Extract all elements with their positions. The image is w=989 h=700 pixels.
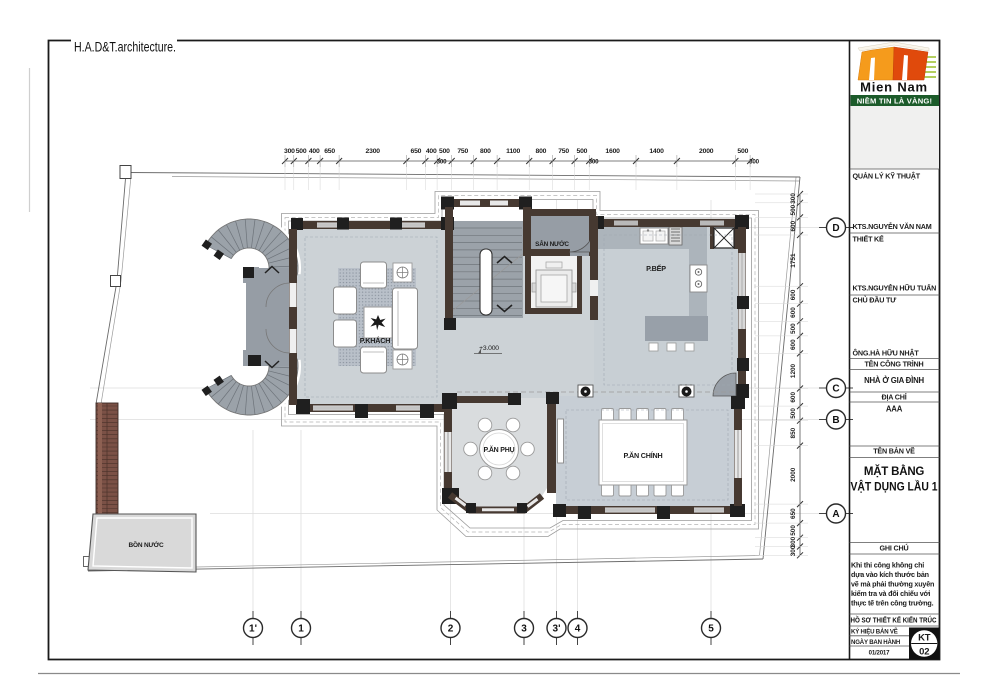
- svg-text:KTS.NGUYỄN HỮU TUẤN: KTS.NGUYỄN HỮU TUẤN: [853, 283, 937, 293]
- svg-text:300: 300: [284, 148, 295, 155]
- svg-text:2000: 2000: [699, 148, 714, 155]
- svg-text:C: C: [832, 384, 839, 395]
- svg-text:CHỦ ĐẦU TƯ: CHỦ ĐẦU TƯ: [853, 295, 897, 305]
- svg-text:thực tế trên công trường.: thực tế trên công trường.: [851, 599, 934, 608]
- svg-text:ÔNG.HÀ HỮU NHẬT: ÔNG.HÀ HỮU NHẬT: [853, 349, 920, 358]
- svg-text:THIẾT KẾ: THIẾT KẾ: [853, 234, 885, 244]
- svg-text:2: 2: [448, 624, 454, 635]
- svg-text:dựa vào kích thước bản: dựa vào kích thước bản: [851, 570, 929, 579]
- svg-text:H.A.D&T.architecture.: H.A.D&T.architecture.: [74, 40, 176, 55]
- svg-text:300: 300: [790, 193, 797, 204]
- svg-text:3: 3: [521, 624, 527, 635]
- svg-text:VẬT DỤNG LẦU 1: VẬT DỤNG LẦU 1: [851, 481, 939, 494]
- svg-text:TÊN CÔNG TRÌNH: TÊN CÔNG TRÌNH: [864, 360, 923, 369]
- svg-text:P.BẾP: P.BẾP: [646, 263, 666, 273]
- svg-text:kiểm tra và đối chiếu với: kiểm tra và đối chiếu với: [851, 589, 930, 598]
- svg-text:800: 800: [536, 148, 547, 155]
- svg-text:500: 500: [790, 204, 797, 215]
- svg-text:300: 300: [589, 159, 599, 166]
- svg-text:01/2017: 01/2017: [869, 650, 890, 657]
- svg-text:1': 1': [249, 624, 257, 635]
- svg-text:600: 600: [790, 392, 797, 403]
- svg-text:3': 3': [553, 624, 561, 635]
- svg-text:B: B: [832, 415, 839, 426]
- svg-text:TÊN BẢN VẼ: TÊN BẢN VẼ: [873, 447, 915, 456]
- svg-text:750: 750: [457, 148, 468, 155]
- svg-text:NGÀY BAN HÀNH: NGÀY BAN HÀNH: [851, 639, 900, 646]
- svg-text:400: 400: [426, 148, 437, 155]
- svg-text:1400: 1400: [649, 148, 664, 155]
- svg-text:1: 1: [298, 624, 304, 635]
- svg-text:1100: 1100: [506, 148, 520, 155]
- svg-text:Mien Nam: Mien Nam: [860, 80, 928, 95]
- svg-text:500: 500: [790, 408, 797, 419]
- svg-text:500: 500: [439, 148, 450, 155]
- svg-text:600: 600: [790, 220, 797, 231]
- svg-text:2000: 2000: [790, 467, 797, 482]
- svg-text:GHI CHÚ: GHI CHÚ: [880, 544, 909, 553]
- svg-text:600: 600: [790, 289, 797, 300]
- svg-text:D: D: [832, 223, 839, 234]
- svg-text:MẶT BẰNG: MẶT BẰNG: [864, 465, 925, 478]
- svg-text:ĐỊA CHỈ: ĐỊA CHỈ: [881, 393, 906, 402]
- svg-text:4: 4: [575, 624, 581, 635]
- svg-text:500: 500: [790, 525, 797, 536]
- svg-text:300: 300: [749, 159, 759, 166]
- svg-text:Khi thi công không chỉ: Khi thi công không chỉ: [851, 561, 924, 570]
- svg-text:500: 500: [737, 148, 748, 155]
- svg-text:1751: 1751: [790, 253, 797, 268]
- svg-text:600: 600: [790, 307, 797, 318]
- svg-text:500: 500: [296, 148, 307, 155]
- svg-text:400: 400: [309, 148, 320, 155]
- svg-text:650: 650: [790, 508, 797, 519]
- svg-text:2300: 2300: [366, 148, 381, 155]
- svg-text:500: 500: [577, 148, 588, 155]
- svg-text:+3.000: +3.000: [479, 345, 499, 352]
- svg-text:600: 600: [790, 339, 797, 350]
- svg-text:NHÀ Ở GIA ĐÌNH: NHÀ Ở GIA ĐÌNH: [864, 376, 924, 385]
- svg-text:P.ĂN PHỤ: P.ĂN PHỤ: [484, 445, 515, 454]
- svg-text:P.KHÁCH: P.KHÁCH: [360, 336, 390, 345]
- svg-text:1200: 1200: [790, 363, 797, 378]
- svg-text:NIỀM TIN LÀ VÀNG!: NIỀM TIN LÀ VÀNG!: [857, 96, 933, 106]
- svg-text:850: 850: [790, 427, 797, 438]
- svg-text:750: 750: [558, 148, 569, 155]
- svg-text:1600: 1600: [605, 148, 620, 155]
- svg-text:SÂN NƯỚC: SÂN NƯỚC: [535, 239, 569, 248]
- svg-text:300: 300: [437, 159, 447, 166]
- svg-text:5: 5: [708, 624, 714, 635]
- svg-text:P.ĂN CHÍNH: P.ĂN CHÍNH: [623, 451, 662, 460]
- svg-text:650: 650: [411, 148, 422, 155]
- svg-text:HỒ SƠ THIẾT KẾ KIẾN TRÚC: HỒ SƠ THIẾT KẾ KIẾN TRÚC: [851, 615, 937, 625]
- svg-text:KÝ HIỆU BẢN VẼ: KÝ HIỆU BẢN VẼ: [851, 628, 898, 636]
- svg-text:800: 800: [480, 148, 491, 155]
- svg-text:QUẢN LÝ KỸ THUẬT: QUẢN LÝ KỸ THUẬT: [853, 172, 921, 181]
- svg-text:AAA: AAA: [886, 405, 903, 414]
- svg-text:300: 300: [790, 545, 797, 556]
- svg-text:KT: KT: [918, 633, 931, 644]
- svg-text:A: A: [832, 509, 839, 520]
- svg-text:500: 500: [790, 323, 797, 334]
- svg-text:vẽ mà phải thường xuyên: vẽ mà phải thường xuyên: [851, 580, 934, 589]
- svg-text:02: 02: [919, 647, 929, 658]
- svg-text:650: 650: [324, 148, 335, 155]
- svg-text:KTS.NGUYỄN VĂN NAM: KTS.NGUYỄN VĂN NAM: [853, 222, 932, 231]
